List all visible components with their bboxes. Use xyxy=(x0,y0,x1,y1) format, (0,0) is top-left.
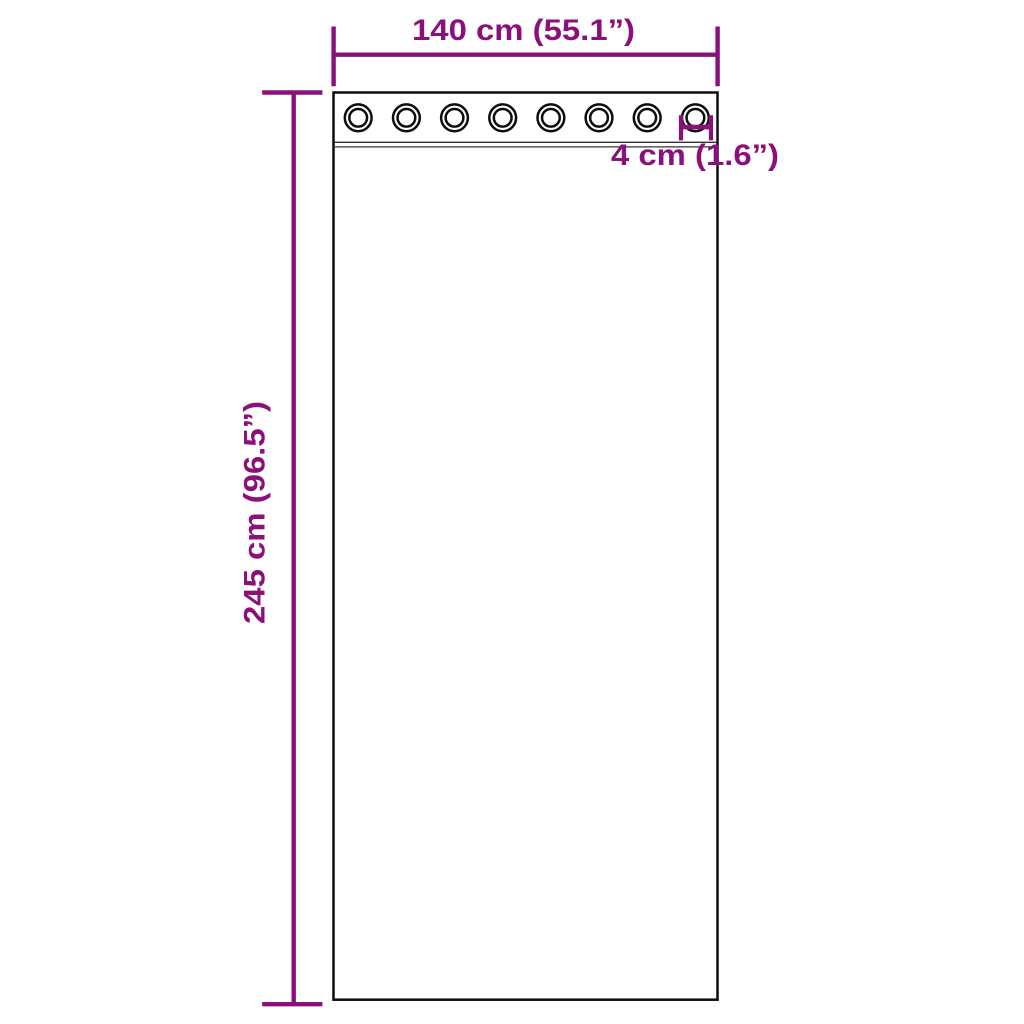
svg-text:140 cm (55.1”): 140 cm (55.1”) xyxy=(412,14,635,47)
svg-text:245 cm (96.5”): 245 cm (96.5”) xyxy=(239,401,272,624)
svg-text:4 cm (1.6”): 4 cm (1.6”) xyxy=(611,139,779,172)
